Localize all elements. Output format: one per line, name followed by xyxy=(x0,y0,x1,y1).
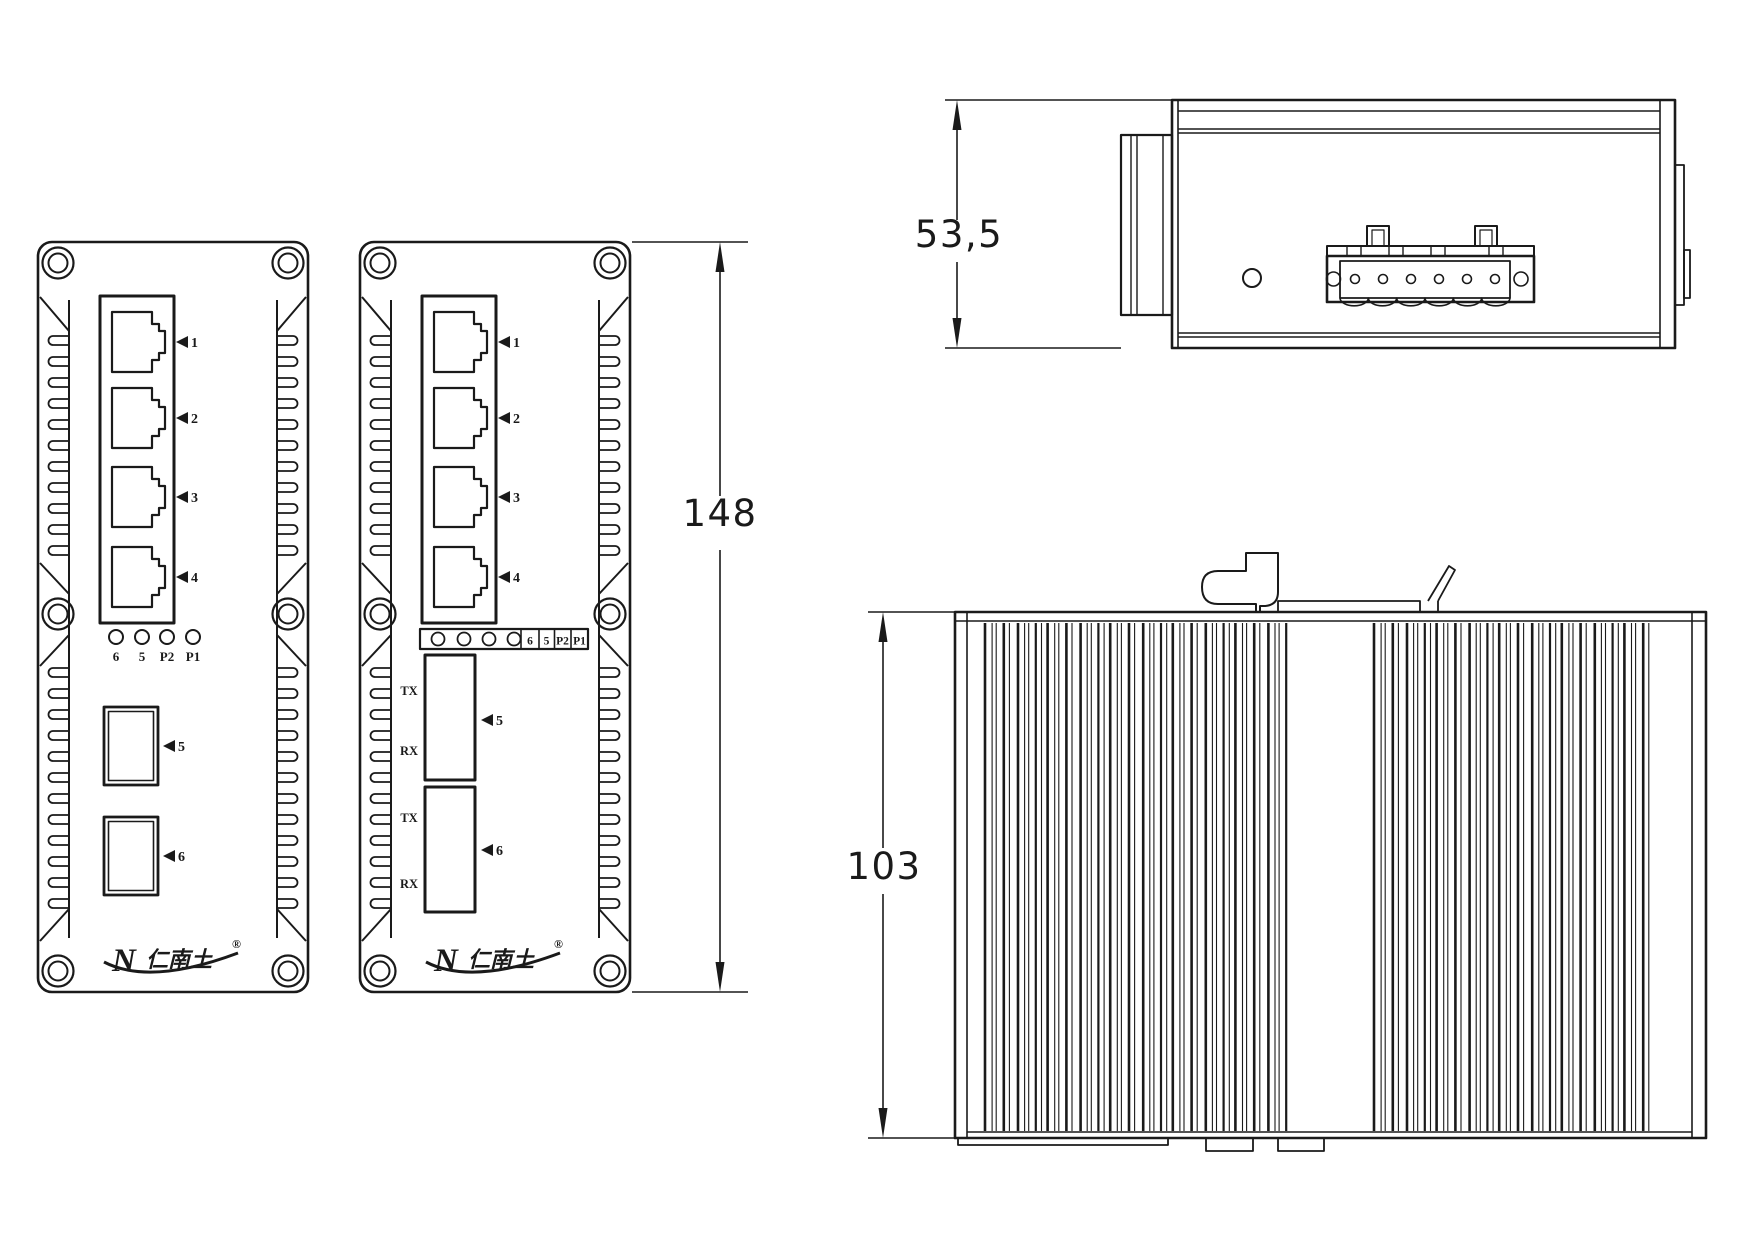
svg-text:6: 6 xyxy=(527,636,533,648)
svg-text:5: 5 xyxy=(496,714,503,729)
svg-text:®: ® xyxy=(232,937,241,951)
svg-text:TX: TX xyxy=(400,684,417,698)
top-view xyxy=(1121,100,1690,348)
svg-text:1: 1 xyxy=(513,336,520,351)
port-pointer-icon xyxy=(498,491,510,503)
svg-text:6: 6 xyxy=(178,850,185,865)
arrow-icon xyxy=(879,612,888,642)
svg-text:5: 5 xyxy=(178,740,185,755)
port-pointer-icon xyxy=(498,336,510,348)
dimensional-drawing: 123465P2P156N仁南土®123465P2P1TXRXTXRX56N仁南… xyxy=(0,0,1754,1241)
svg-text:4: 4 xyxy=(191,571,198,586)
dimension-side-height: 103 xyxy=(846,845,921,888)
svg-text:N: N xyxy=(433,943,459,979)
arrow-icon xyxy=(953,318,962,348)
svg-text:5: 5 xyxy=(544,636,550,648)
side-view xyxy=(955,553,1706,1151)
port-pointer-icon xyxy=(176,412,188,424)
svg-text:1: 1 xyxy=(191,336,198,351)
drawing-canvas: 123465P2P156N仁南土®123465P2P1TXRXTXRX56N仁南… xyxy=(0,0,1754,1241)
svg-text:4: 4 xyxy=(513,571,520,586)
dimension-front-height: 148 xyxy=(682,492,757,535)
port-pointer-icon xyxy=(481,714,493,726)
din-rail-clip xyxy=(1202,553,1455,612)
port-pointer-icon xyxy=(163,850,175,862)
port-pointer-icon xyxy=(498,412,510,424)
svg-text:P1: P1 xyxy=(186,649,200,664)
port-pointer-icon xyxy=(481,844,493,856)
svg-text:TX: TX xyxy=(400,811,417,825)
arrow-icon xyxy=(716,962,725,992)
svg-text:RX: RX xyxy=(400,744,418,758)
svg-text:®: ® xyxy=(554,937,563,951)
terminal-block xyxy=(1327,226,1535,306)
port-pointer-icon xyxy=(163,740,175,752)
arrow-icon xyxy=(879,1108,888,1138)
svg-text:6: 6 xyxy=(496,844,503,859)
arrow-icon xyxy=(716,242,725,272)
svg-text:P1: P1 xyxy=(573,636,586,648)
svg-text:3: 3 xyxy=(191,491,198,506)
brand-logo: N仁南土® xyxy=(104,937,241,979)
svg-text:2: 2 xyxy=(513,412,520,427)
svg-text:6: 6 xyxy=(113,649,120,664)
port-pointer-icon xyxy=(498,571,510,583)
svg-text:RX: RX xyxy=(400,877,418,891)
port-pointer-icon xyxy=(176,571,188,583)
svg-text:2: 2 xyxy=(191,412,198,427)
front-view-1: 123465P2P156N仁南土® xyxy=(38,242,308,992)
brand-logo: N仁南土® xyxy=(426,937,563,979)
svg-text:P2: P2 xyxy=(160,649,174,664)
svg-text:5: 5 xyxy=(139,649,146,664)
front-view-2: 123465P2P1TXRXTXRX56N仁南土® xyxy=(360,242,630,992)
dimension-front-height-lines xyxy=(632,242,748,992)
svg-text:P2: P2 xyxy=(556,636,569,648)
arrow-icon xyxy=(953,100,962,130)
dimension-top-depth: 53,5 xyxy=(915,213,1003,256)
svg-text:N: N xyxy=(111,943,137,979)
port-pointer-icon xyxy=(176,336,188,348)
svg-text:3: 3 xyxy=(513,491,520,506)
port-pointer-icon xyxy=(176,491,188,503)
